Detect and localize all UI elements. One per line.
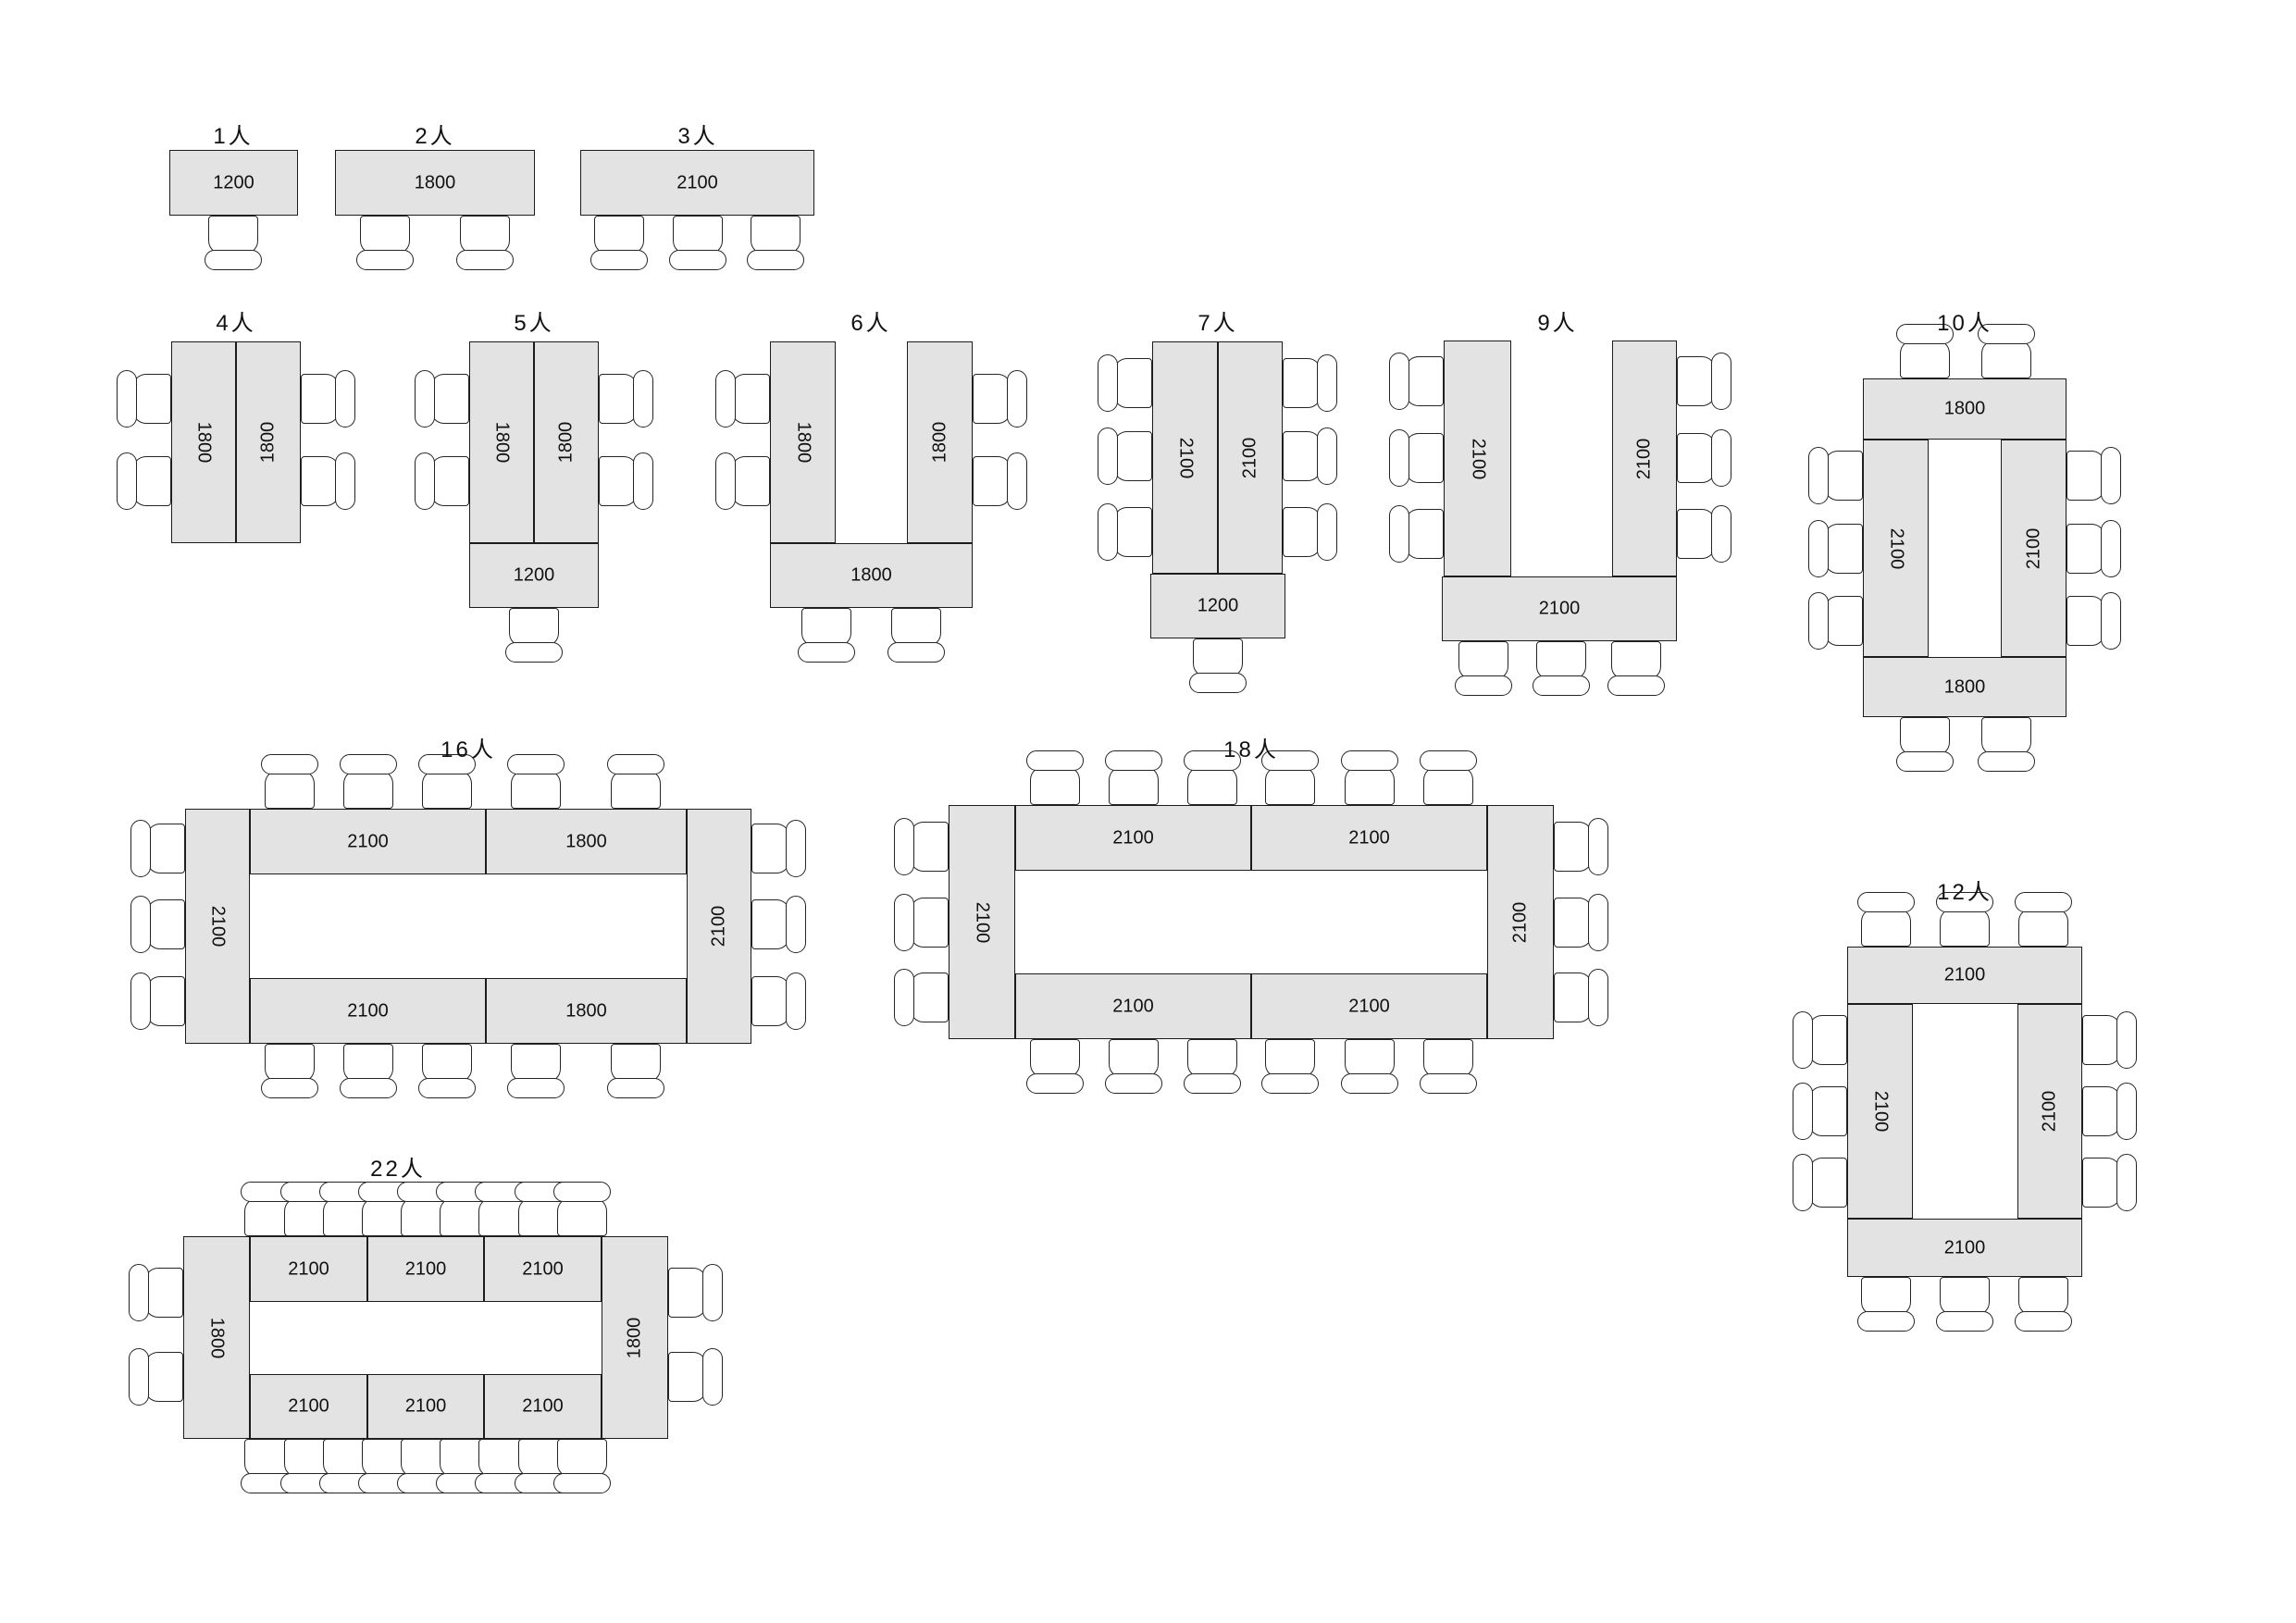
chair-back bbox=[2101, 592, 2121, 650]
chair-back bbox=[507, 1078, 565, 1098]
table-2100: 2100 bbox=[250, 978, 486, 1044]
chair-back bbox=[1184, 1073, 1241, 1094]
chair-seat bbox=[1193, 638, 1243, 677]
chair-back bbox=[1808, 447, 1829, 504]
table-size-label: 2100 bbox=[1539, 599, 1581, 620]
chair-back bbox=[894, 894, 914, 951]
table-size-label: 1800 bbox=[625, 1317, 646, 1358]
table-size-label: 1800 bbox=[1944, 399, 1986, 420]
chair-back bbox=[1793, 1154, 1813, 1211]
table-size-label: 2100 bbox=[972, 901, 993, 943]
chair-seat bbox=[557, 1439, 607, 1478]
chair-back bbox=[1341, 1073, 1398, 1094]
chair-seat bbox=[1187, 1039, 1237, 1078]
chair-back bbox=[786, 820, 806, 877]
group-title: 22人 bbox=[305, 1150, 490, 1183]
table-size-label: 2100 bbox=[347, 831, 389, 852]
table-2100: 2100 bbox=[250, 809, 486, 874]
chair-seat bbox=[1554, 973, 1593, 1022]
table-size-label: 2100 bbox=[288, 1396, 329, 1418]
chair-seat bbox=[1187, 766, 1237, 805]
chair-back bbox=[747, 250, 804, 270]
table-size-label: 2100 bbox=[1634, 438, 1656, 479]
table-1800: 1800 bbox=[770, 543, 973, 608]
chair-seat bbox=[973, 374, 1011, 424]
group-title: 9人 bbox=[1465, 304, 1650, 337]
chair-back bbox=[1588, 818, 1608, 875]
chair-seat bbox=[1030, 766, 1080, 805]
table-2100: 2100 bbox=[484, 1374, 602, 1439]
chair-back bbox=[633, 370, 653, 427]
chair-seat bbox=[1109, 1039, 1159, 1078]
chair-back bbox=[1389, 429, 1409, 487]
table-1800: 1800 bbox=[1863, 657, 2066, 717]
chair-seat bbox=[673, 216, 723, 254]
table-size-label: 2100 bbox=[1348, 827, 1390, 849]
chair-back bbox=[505, 642, 563, 663]
chair-back bbox=[607, 754, 664, 774]
chair-seat bbox=[2082, 1158, 2121, 1208]
table-size-label: 1800 bbox=[415, 172, 456, 193]
chair-back bbox=[129, 1264, 149, 1321]
table-size-label: 1800 bbox=[206, 1317, 228, 1358]
table-size-label: 2100 bbox=[1869, 1091, 1891, 1133]
chair-back bbox=[1808, 592, 1829, 650]
chair-seat bbox=[2018, 908, 2068, 947]
table-size-label: 2100 bbox=[1885, 527, 1906, 569]
chair-seat bbox=[2066, 451, 2105, 501]
chair-seat bbox=[1554, 822, 1593, 872]
table-size-label: 2100 bbox=[1174, 437, 1196, 478]
chair-seat bbox=[343, 770, 393, 809]
chair-seat bbox=[509, 608, 559, 647]
chair-seat bbox=[1824, 524, 1863, 574]
chair-seat bbox=[146, 976, 185, 1026]
table-size-label: 1200 bbox=[1198, 596, 1239, 617]
table-2100: 2100 bbox=[1152, 341, 1218, 574]
chair-seat bbox=[360, 216, 410, 254]
chair-seat bbox=[611, 770, 661, 809]
chair-seat bbox=[668, 1352, 707, 1402]
chair-back bbox=[1793, 1083, 1813, 1140]
group-title: 18人 bbox=[1159, 731, 1344, 763]
chair-back bbox=[607, 1078, 664, 1098]
chair-seat bbox=[1423, 766, 1473, 805]
chair-seat bbox=[301, 374, 340, 424]
chair-seat bbox=[1030, 1039, 1080, 1078]
chair-seat bbox=[910, 898, 949, 948]
table-1800: 1800 bbox=[469, 341, 534, 543]
chair-seat bbox=[1458, 641, 1508, 680]
chair-seat bbox=[146, 824, 185, 873]
table-1800: 1800 bbox=[183, 1236, 250, 1439]
chair-seat bbox=[2082, 1015, 2121, 1065]
chair-back bbox=[1588, 894, 1608, 951]
chair-seat bbox=[144, 1268, 183, 1318]
chair-seat bbox=[731, 374, 770, 424]
table-1200: 1200 bbox=[169, 150, 298, 216]
group-title: 6人 bbox=[778, 304, 963, 337]
table-2100: 2100 bbox=[949, 805, 1015, 1039]
chair-seat bbox=[1981, 340, 2031, 378]
table-1800: 1800 bbox=[907, 341, 973, 543]
chair-seat bbox=[599, 374, 638, 424]
chair-seat bbox=[146, 899, 185, 949]
chair-back bbox=[2116, 1011, 2137, 1069]
chair-seat bbox=[1345, 766, 1395, 805]
table-2100: 2100 bbox=[250, 1374, 367, 1439]
table-size-label: 1800 bbox=[193, 422, 215, 464]
table-size-label: 1800 bbox=[258, 422, 279, 464]
chair-back bbox=[1105, 1073, 1162, 1094]
table-1800: 1800 bbox=[236, 341, 301, 543]
chair-back bbox=[702, 1348, 723, 1406]
chair-seat bbox=[557, 1197, 607, 1236]
chair-seat bbox=[343, 1044, 393, 1083]
table-size-label: 1800 bbox=[491, 422, 513, 464]
chair-back bbox=[1711, 505, 1731, 563]
chair-back bbox=[261, 1078, 318, 1098]
chair-back bbox=[1711, 429, 1731, 487]
chair-seat bbox=[611, 1044, 661, 1083]
chair-back bbox=[633, 452, 653, 510]
chair-back bbox=[117, 452, 137, 510]
chair-seat bbox=[1113, 358, 1152, 408]
table-1800: 1800 bbox=[602, 1236, 668, 1439]
table-size-label: 2100 bbox=[405, 1396, 447, 1418]
chair-back bbox=[1420, 750, 1477, 771]
table-2100: 2100 bbox=[1444, 341, 1511, 576]
table-size-label: 1800 bbox=[565, 1000, 607, 1022]
chair-seat bbox=[1824, 451, 1863, 501]
table-1800: 1800 bbox=[1863, 378, 2066, 440]
table-2100: 2100 bbox=[1487, 805, 1554, 1039]
chair-seat bbox=[265, 770, 315, 809]
table-size-label: 2100 bbox=[1944, 1237, 1986, 1258]
chair-seat bbox=[1861, 1277, 1911, 1316]
table-size-label: 1800 bbox=[929, 422, 950, 464]
chair-seat bbox=[1109, 766, 1159, 805]
chair-back bbox=[356, 250, 414, 270]
table-2100: 2100 bbox=[367, 1374, 484, 1439]
chair-seat bbox=[1861, 908, 1911, 947]
table-2100: 2100 bbox=[1847, 947, 2082, 1004]
chair-back bbox=[715, 452, 736, 510]
chair-back bbox=[1098, 354, 1118, 412]
chair-seat bbox=[1405, 433, 1444, 483]
table-size-label: 1800 bbox=[565, 831, 607, 852]
chair-seat bbox=[1113, 507, 1152, 557]
table-2100: 2100 bbox=[1863, 440, 1929, 657]
table-1800: 1800 bbox=[770, 341, 836, 543]
group-title: 2人 bbox=[342, 118, 527, 150]
table-2100: 2100 bbox=[185, 809, 250, 1044]
table-size-label: 1200 bbox=[514, 565, 555, 587]
table-size-label: 2100 bbox=[676, 172, 718, 193]
chair-back bbox=[553, 1182, 611, 1202]
chair-back bbox=[418, 1078, 476, 1098]
chair-seat bbox=[1265, 1039, 1315, 1078]
chair-seat bbox=[973, 456, 1011, 506]
chair-back bbox=[1007, 370, 1027, 427]
table-size-label: 2100 bbox=[522, 1396, 564, 1418]
chair-back bbox=[1189, 673, 1247, 693]
chair-seat bbox=[1405, 356, 1444, 406]
chair-back bbox=[1711, 353, 1731, 410]
chair-seat bbox=[1808, 1015, 1847, 1065]
chair-back bbox=[1317, 427, 1337, 485]
chair-back bbox=[786, 896, 806, 953]
chair-seat bbox=[1536, 641, 1586, 680]
chair-seat bbox=[751, 216, 800, 254]
chair-seat bbox=[1113, 431, 1152, 481]
chair-seat bbox=[910, 822, 949, 872]
table-size-label: 1800 bbox=[556, 422, 577, 464]
chair-back bbox=[1026, 1073, 1084, 1094]
chair-back bbox=[1389, 505, 1409, 563]
chair-back bbox=[553, 1473, 611, 1493]
chair-seat bbox=[1940, 908, 1990, 947]
chair-seat bbox=[132, 456, 171, 506]
chair-seat bbox=[1900, 717, 1950, 756]
table-2100: 2100 bbox=[1442, 576, 1677, 641]
chair-seat bbox=[2018, 1277, 2068, 1316]
chair-seat bbox=[731, 456, 770, 506]
chair-back bbox=[1317, 354, 1337, 412]
table-size-label: 1800 bbox=[850, 565, 892, 587]
table-2100: 2100 bbox=[1251, 973, 1487, 1039]
chair-seat bbox=[751, 824, 790, 873]
chair-seat bbox=[1283, 358, 1322, 408]
chair-seat bbox=[910, 973, 949, 1022]
chair-back bbox=[456, 250, 514, 270]
chair-back bbox=[894, 818, 914, 875]
chair-back bbox=[261, 754, 318, 774]
chair-back bbox=[1317, 503, 1337, 561]
table-size-label: 1800 bbox=[792, 422, 813, 464]
table-2100: 2100 bbox=[1612, 341, 1677, 576]
chair-seat bbox=[1611, 641, 1661, 680]
chair-back bbox=[887, 642, 945, 663]
chair-seat bbox=[1677, 433, 1716, 483]
chair-back bbox=[590, 250, 648, 270]
chair-seat bbox=[1900, 340, 1950, 378]
chair-back bbox=[1261, 1073, 1319, 1094]
chair-back bbox=[1026, 750, 1084, 771]
chair-back bbox=[415, 452, 435, 510]
table-size-label: 2100 bbox=[2023, 527, 2044, 569]
table-size-label: 2100 bbox=[522, 1258, 564, 1280]
chair-back bbox=[2116, 1154, 2137, 1211]
chair-back bbox=[1978, 751, 2035, 772]
table-1800: 1800 bbox=[171, 341, 236, 543]
chair-seat bbox=[1423, 1039, 1473, 1078]
table-size-label: 2100 bbox=[347, 1000, 389, 1022]
table-size-label: 2100 bbox=[405, 1258, 447, 1280]
table-2100: 2100 bbox=[1015, 805, 1251, 871]
chair-back bbox=[1341, 750, 1398, 771]
chair-back bbox=[2015, 1311, 2072, 1332]
table-size-label: 2100 bbox=[288, 1258, 329, 1280]
chair-back bbox=[335, 452, 355, 510]
chair-seat bbox=[430, 374, 469, 424]
table-2100: 2100 bbox=[2001, 440, 2066, 657]
chair-back bbox=[702, 1264, 723, 1321]
table-size-label: 2100 bbox=[2040, 1091, 2061, 1133]
chair-seat bbox=[265, 1044, 315, 1083]
group-title: 12人 bbox=[1872, 873, 2057, 906]
chair-back bbox=[1098, 503, 1118, 561]
chair-back bbox=[117, 370, 137, 427]
group-title: 16人 bbox=[376, 731, 561, 763]
group-title: 7人 bbox=[1125, 304, 1310, 337]
chair-seat bbox=[1554, 898, 1593, 948]
chair-seat bbox=[208, 216, 258, 254]
chair-seat bbox=[1283, 507, 1322, 557]
chair-seat bbox=[594, 216, 644, 254]
chair-back bbox=[2101, 447, 2121, 504]
table-size-label: 2100 bbox=[1240, 437, 1261, 478]
chair-back bbox=[786, 973, 806, 1030]
table-2100: 2100 bbox=[580, 150, 814, 216]
chair-seat bbox=[1265, 766, 1315, 805]
table-2100: 2100 bbox=[1847, 1004, 1913, 1219]
chair-back bbox=[2116, 1083, 2137, 1140]
table-2100: 2100 bbox=[367, 1236, 484, 1302]
chair-seat bbox=[751, 976, 790, 1026]
table-2100: 2100 bbox=[484, 1236, 602, 1302]
group-title: 10人 bbox=[1872, 304, 2057, 337]
chair-back bbox=[1389, 353, 1409, 410]
chair-seat bbox=[1677, 509, 1716, 559]
chair-seat bbox=[751, 899, 790, 949]
chair-seat bbox=[422, 1044, 472, 1083]
chair-seat bbox=[2066, 524, 2105, 574]
table-2100: 2100 bbox=[1218, 341, 1283, 574]
chair-seat bbox=[301, 456, 340, 506]
chair-seat bbox=[1677, 356, 1716, 406]
table-size-label: 1800 bbox=[1944, 676, 1986, 698]
table-size-label: 2100 bbox=[1510, 901, 1532, 943]
chair-back bbox=[798, 642, 855, 663]
chair-seat bbox=[2066, 596, 2105, 646]
chair-back bbox=[1007, 452, 1027, 510]
table-1800: 1800 bbox=[486, 809, 687, 874]
chair-back bbox=[1455, 675, 1512, 696]
chair-seat bbox=[144, 1352, 183, 1402]
chair-seat bbox=[1808, 1158, 1847, 1208]
chair-seat bbox=[801, 608, 851, 647]
chair-seat bbox=[511, 770, 561, 809]
chair-seat bbox=[132, 374, 171, 424]
group-title: 4人 bbox=[143, 304, 329, 337]
chair-seat bbox=[891, 608, 941, 647]
table-2100: 2100 bbox=[1251, 805, 1487, 871]
group-title: 3人 bbox=[605, 118, 790, 150]
chair-back bbox=[894, 969, 914, 1026]
chair-seat bbox=[668, 1268, 707, 1318]
chair-seat bbox=[1981, 717, 2031, 756]
chair-back bbox=[130, 820, 151, 877]
chair-seat bbox=[599, 456, 638, 506]
table-size-label: 2100 bbox=[207, 906, 229, 948]
chair-back bbox=[715, 370, 736, 427]
table-size-label: 2100 bbox=[1467, 438, 1488, 479]
table-layout-diagram: 1人12002人18003人21004人180018005人1800180012… bbox=[0, 0, 2296, 1623]
chair-back bbox=[335, 370, 355, 427]
chair-back bbox=[1607, 675, 1665, 696]
table-2100: 2100 bbox=[1847, 1219, 2082, 1277]
chair-back bbox=[205, 250, 262, 270]
table-size-label: 2100 bbox=[1348, 996, 1390, 1017]
table-2100: 2100 bbox=[1015, 973, 1251, 1039]
chair-seat bbox=[1283, 431, 1322, 481]
chair-back bbox=[1793, 1011, 1813, 1069]
chair-back bbox=[1098, 427, 1118, 485]
chair-seat bbox=[2082, 1086, 2121, 1136]
chair-back bbox=[415, 370, 435, 427]
chair-seat bbox=[1405, 509, 1444, 559]
chair-back bbox=[1588, 969, 1608, 1026]
chair-back bbox=[2101, 520, 2121, 577]
chair-back bbox=[1420, 1073, 1477, 1094]
table-1200: 1200 bbox=[469, 543, 599, 608]
chair-seat bbox=[1808, 1086, 1847, 1136]
table-size-label: 2100 bbox=[1944, 965, 1986, 986]
table-2100: 2100 bbox=[687, 809, 751, 1044]
chair-back bbox=[1533, 675, 1590, 696]
chair-seat bbox=[430, 456, 469, 506]
chair-seat bbox=[1940, 1277, 1990, 1316]
table-size-label: 2100 bbox=[709, 906, 730, 948]
chair-seat bbox=[511, 1044, 561, 1083]
group-title: 5人 bbox=[441, 304, 627, 337]
chair-back bbox=[130, 896, 151, 953]
chair-back bbox=[1808, 520, 1829, 577]
table-1800: 1800 bbox=[534, 341, 599, 543]
chair-back bbox=[1857, 1311, 1915, 1332]
table-size-label: 1200 bbox=[213, 172, 254, 193]
chair-seat bbox=[1345, 1039, 1395, 1078]
chair-back bbox=[1936, 1311, 1993, 1332]
group-title: 1人 bbox=[141, 118, 326, 150]
table-size-label: 2100 bbox=[1112, 827, 1154, 849]
chair-seat bbox=[422, 770, 472, 809]
chair-back bbox=[129, 1348, 149, 1406]
chair-back bbox=[1105, 750, 1162, 771]
chair-back bbox=[669, 250, 726, 270]
table-1200: 1200 bbox=[1150, 574, 1285, 638]
table-2100: 2100 bbox=[2017, 1004, 2082, 1219]
table-2100: 2100 bbox=[250, 1236, 367, 1302]
chair-back bbox=[1896, 751, 1954, 772]
table-size-label: 2100 bbox=[1112, 996, 1154, 1017]
chair-back bbox=[130, 973, 151, 1030]
table-1800: 1800 bbox=[486, 978, 687, 1044]
table-1800: 1800 bbox=[335, 150, 535, 216]
chair-back bbox=[340, 1078, 397, 1098]
chair-seat bbox=[1824, 596, 1863, 646]
chair-seat bbox=[460, 216, 510, 254]
